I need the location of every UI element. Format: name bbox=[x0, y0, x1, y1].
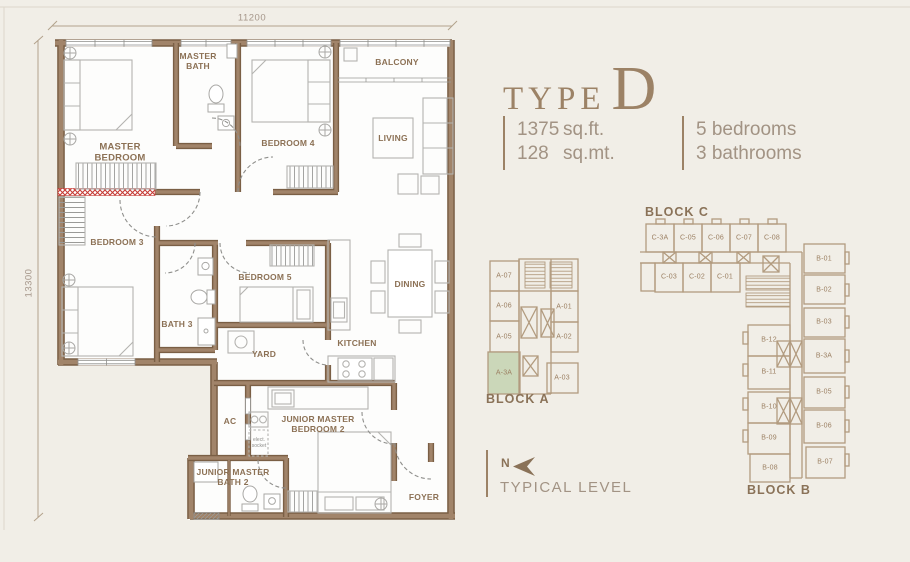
room-label-living: LIVING bbox=[371, 133, 415, 143]
room-label-kitchen: KITCHEN bbox=[330, 338, 384, 348]
area-sqft-value: 1375 bbox=[517, 118, 563, 142]
socket-note: elect. socket bbox=[250, 437, 268, 449]
unit-label-b06: B-06 bbox=[816, 423, 832, 430]
room-label-bedroom5: BEDROOM 5 bbox=[230, 272, 300, 282]
area-sqmt: 128sq.mt. bbox=[517, 142, 615, 166]
type-title-prefix: TYPE bbox=[503, 81, 606, 118]
unit-label-b11: B-11 bbox=[761, 369, 776, 376]
unit-label-b05: B-05 bbox=[816, 389, 832, 396]
room-label-junior-master-bath2: JUNIOR MASTER BATH 2 bbox=[192, 467, 274, 487]
red-hatch-strip bbox=[58, 189, 155, 196]
unit-label-c02: C-02 bbox=[689, 274, 705, 281]
bedrooms-count: 5 bedrooms bbox=[696, 118, 802, 142]
block-c-label: BLOCK C bbox=[645, 205, 709, 219]
type-title: TYPE D bbox=[503, 58, 656, 120]
unit-label-c03: C-03 bbox=[661, 274, 677, 281]
unit-label-c08: C-08 bbox=[764, 235, 780, 242]
floorplan-svg bbox=[0, 0, 910, 562]
area-sqft-unit: sq.ft. bbox=[563, 119, 604, 140]
room-label-dining: DINING bbox=[388, 279, 432, 289]
room-label-bath3: BATH 3 bbox=[154, 319, 200, 329]
block-b-label: BLOCK B bbox=[747, 483, 811, 497]
area-sqmt-value: 128 bbox=[517, 142, 563, 166]
unit-label-a05: A-05 bbox=[496, 334, 512, 341]
unit-label-c3a: C-3A bbox=[652, 235, 669, 242]
level-divider-bar bbox=[486, 450, 488, 497]
bathrooms-count: 3 bathrooms bbox=[696, 142, 802, 166]
room-label-bedroom4: BEDROOM 4 bbox=[253, 138, 323, 148]
unit-label-c06: C-06 bbox=[708, 235, 724, 242]
unit-label-b12: B-12 bbox=[761, 337, 777, 344]
room-label-ac: AC bbox=[218, 416, 242, 426]
unit-label-b09: B-09 bbox=[761, 435, 777, 442]
room-label-master-bath: MASTER BATH bbox=[174, 51, 222, 71]
dimension-height: 13300 bbox=[24, 269, 35, 298]
unit-label-a01: A-01 bbox=[556, 304, 572, 311]
room-label-balcony: BALCONY bbox=[367, 57, 427, 67]
block-c-plan bbox=[640, 219, 802, 307]
area-sqft: 1375sq.ft. bbox=[517, 118, 615, 142]
unit-label-b01: B-01 bbox=[816, 256, 832, 263]
unit-label-a02: A-02 bbox=[556, 334, 572, 341]
unit-label-b07: B-07 bbox=[817, 459, 833, 466]
room-label-bedroom3: BEDROOM 3 bbox=[82, 237, 152, 247]
block-a-label: BLOCK A bbox=[486, 392, 549, 406]
north-label: N bbox=[501, 456, 510, 470]
unit-label-a07: A-07 bbox=[496, 273, 512, 280]
unit-label-c05: C-05 bbox=[680, 235, 696, 242]
unit-label-b02: B-02 bbox=[816, 287, 832, 294]
unit-label-c07: C-07 bbox=[736, 235, 752, 242]
unit-label-b10: B-10 bbox=[761, 404, 777, 411]
room-label-master-bedroom: MASTER BEDROOM bbox=[89, 142, 151, 165]
room-label-foyer: FOYER bbox=[401, 492, 447, 502]
unit-label-b3a: B-3A bbox=[816, 353, 832, 360]
room-label-yard: YARD bbox=[244, 349, 284, 359]
unit-label-b08: B-08 bbox=[762, 465, 778, 472]
brochure-page: MASTER BEDROOM MASTER BATH BEDROOM 4 BAL… bbox=[0, 0, 910, 562]
unit-label-c01: C-01 bbox=[717, 274, 733, 281]
typical-level-label: TYPICAL LEVEL bbox=[500, 479, 632, 496]
unit-label-a3a: A-3A bbox=[496, 370, 512, 377]
room-label-junior-master-bedroom2: JUNIOR MASTER BEDROOM 2 bbox=[272, 414, 364, 434]
unit-label-a06: A-06 bbox=[496, 303, 512, 310]
dimension-width: 11200 bbox=[238, 13, 266, 24]
area-sqmt-unit: sq.mt. bbox=[563, 143, 615, 164]
unit-label-b03: B-03 bbox=[816, 319, 832, 326]
rooms-spec: 5 bedrooms 3 bathrooms bbox=[682, 116, 802, 170]
area-spec: 1375sq.ft. 128sq.mt. bbox=[503, 116, 615, 170]
unit-label-a03: A-03 bbox=[554, 375, 570, 382]
north-arrow-icon bbox=[513, 457, 535, 476]
type-title-letter: D bbox=[612, 58, 657, 120]
